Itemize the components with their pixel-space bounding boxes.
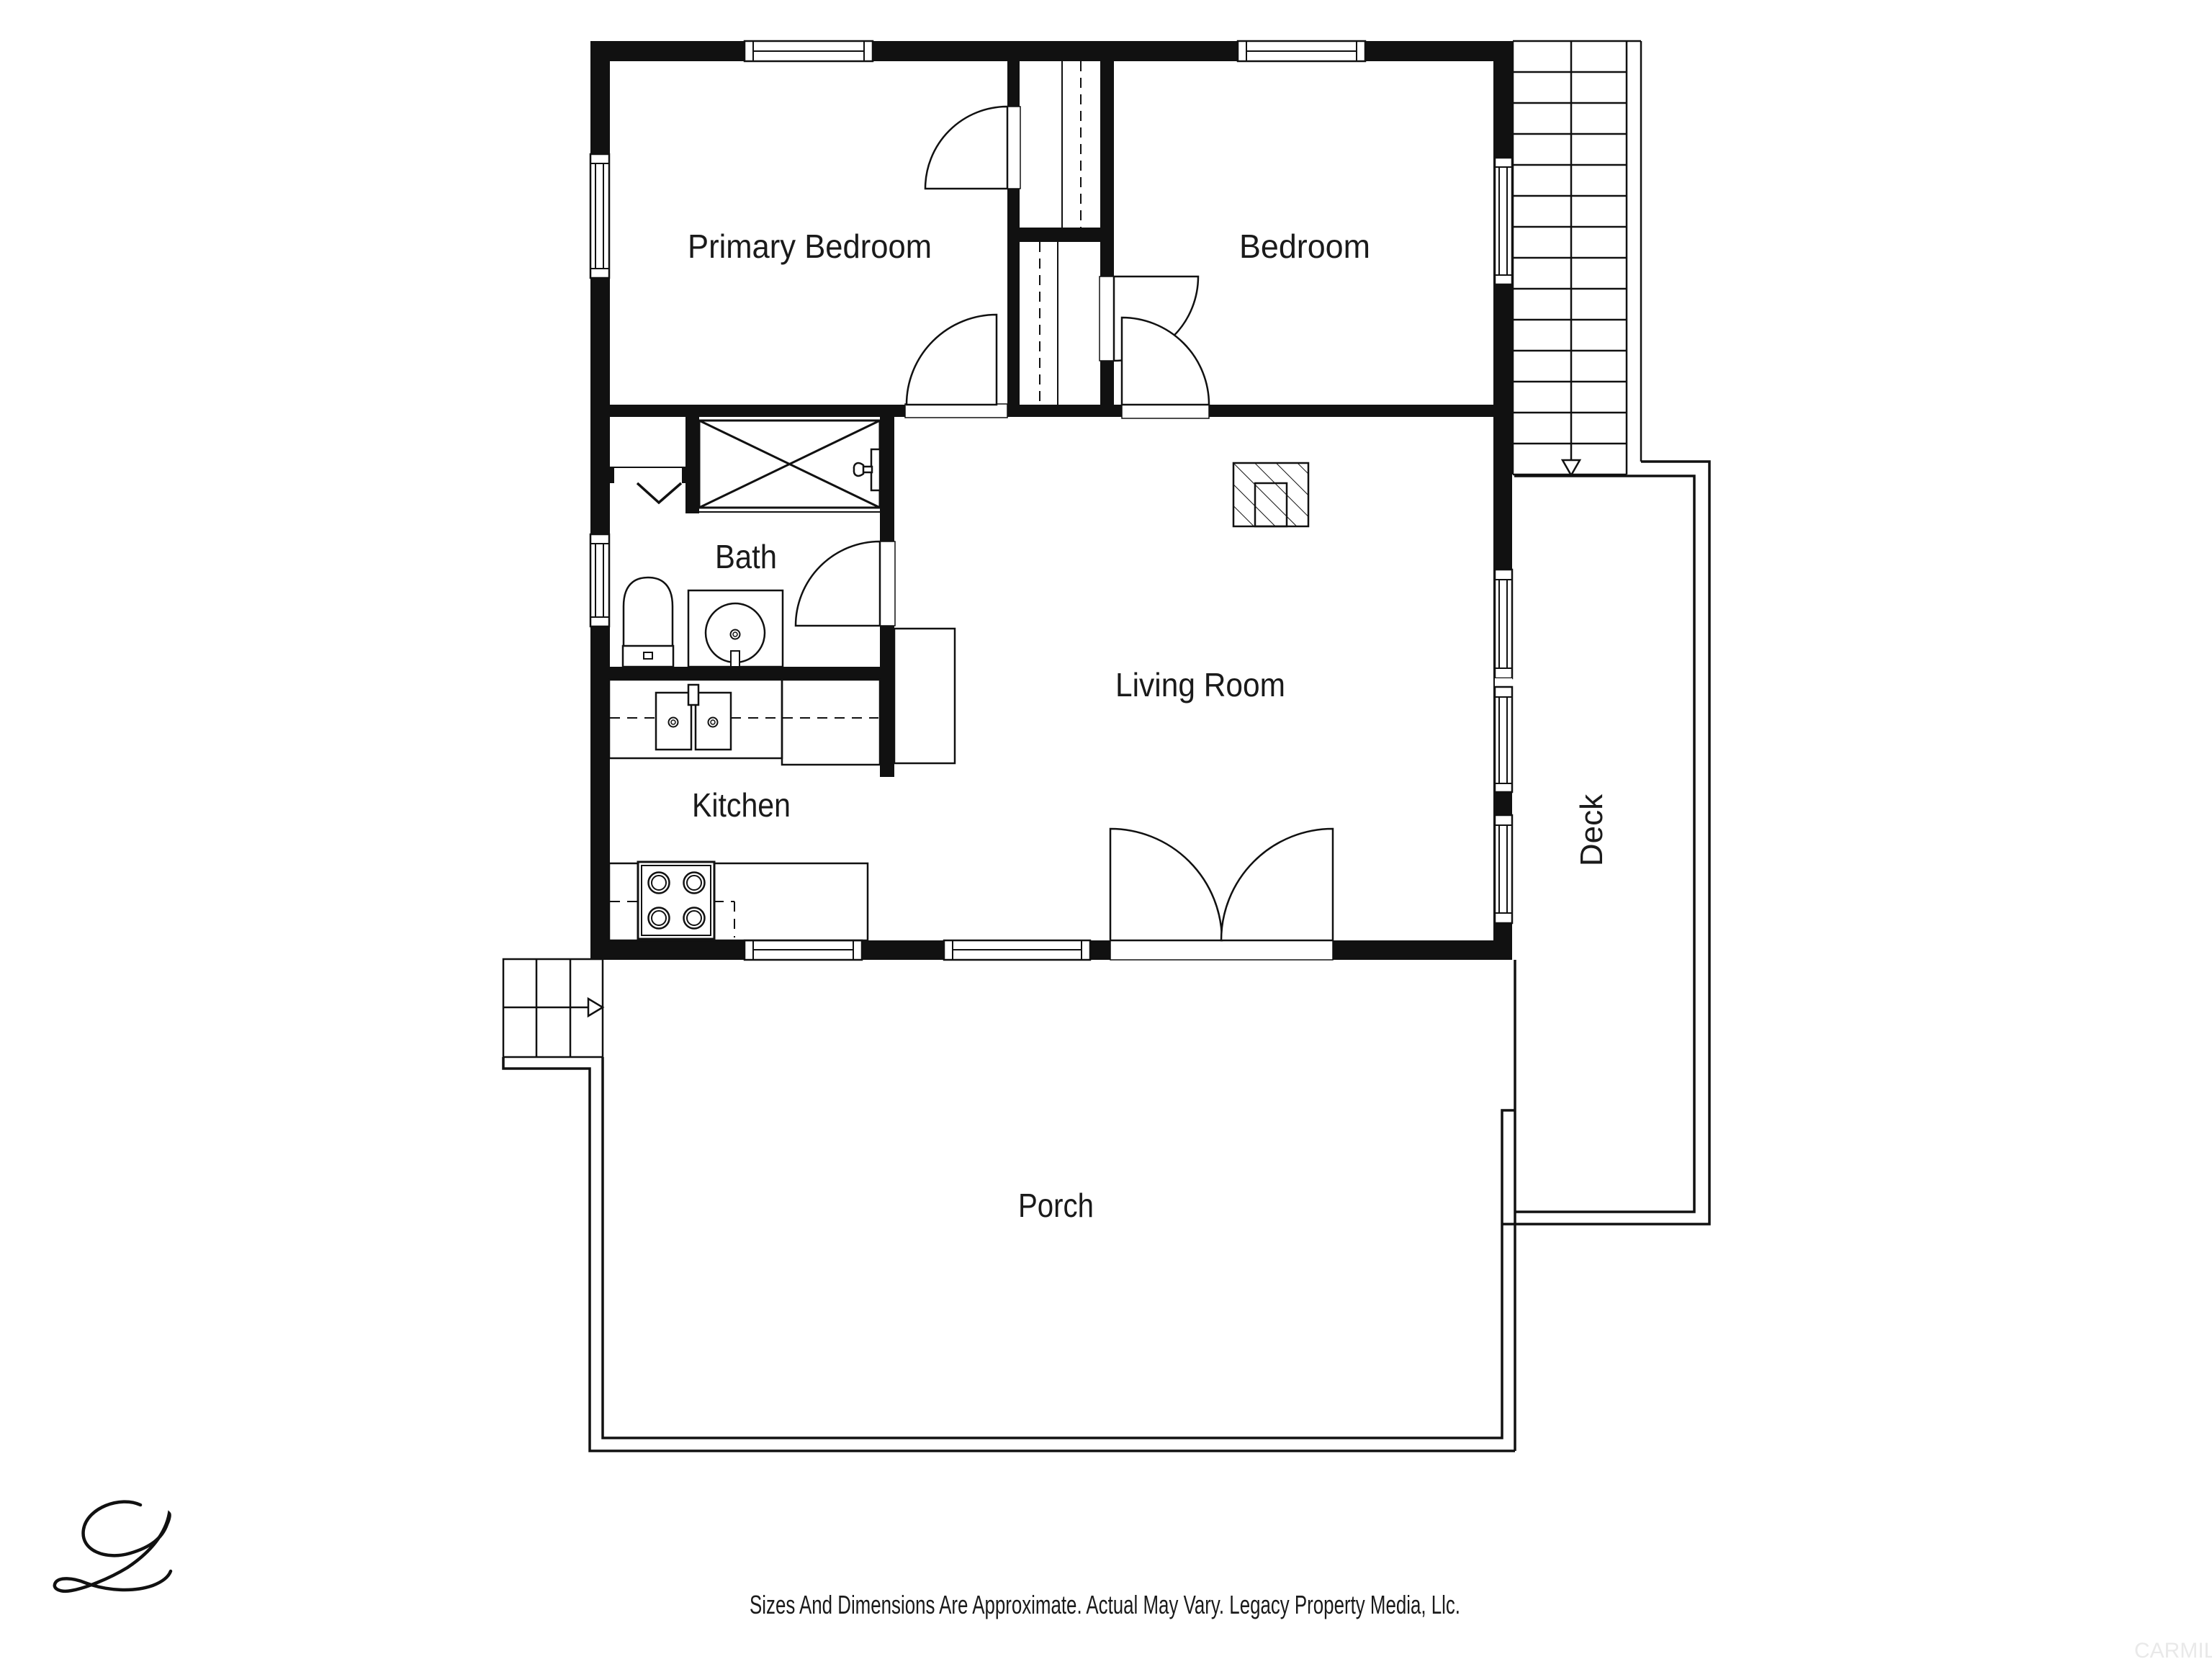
- svg-text:Bath: Bath: [715, 538, 777, 575]
- svg-text:Primary Bedroom: Primary Bedroom: [688, 228, 932, 265]
- svg-text:Kitchen: Kitchen: [692, 786, 791, 824]
- svg-text:Sizes And Dimensions Are Appro: Sizes And Dimensions Are Approximate. Ac…: [750, 1590, 1460, 1619]
- svg-text:Deck: Deck: [1574, 793, 1609, 866]
- svg-text:Bedroom: Bedroom: [1239, 228, 1370, 265]
- svg-text:Porch: Porch: [1018, 1187, 1094, 1224]
- svg-text:CARMILE, TUC: CARMILE, TUC: [2134, 1639, 2212, 1659]
- svg-text:Living Room: Living Room: [1115, 666, 1285, 703]
